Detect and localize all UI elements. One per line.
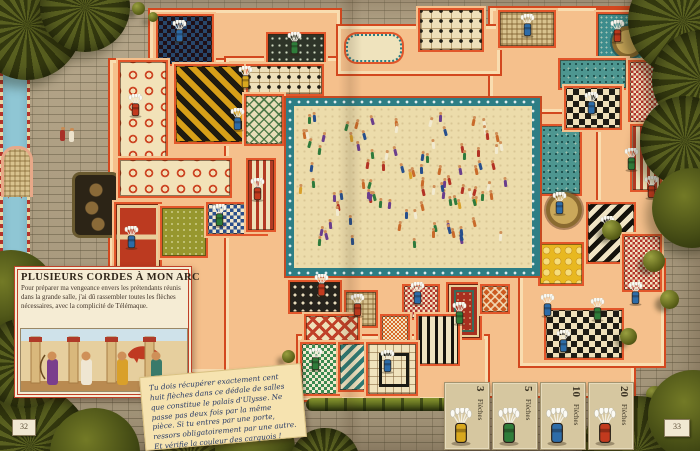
crowd-figure (394, 126, 398, 133)
crowd-figure (400, 166, 405, 174)
legend-tile-10-arrows: 10 Flèches (540, 382, 586, 450)
story-title: PLUSIEURS CORDES À MON ARC (21, 272, 185, 283)
legend-label: 5 Flèches (520, 386, 536, 420)
palace-room-latticeGreen[interactable] (246, 96, 282, 144)
palace-room-diamondGrid[interactable] (420, 10, 482, 50)
legend-label: 3 Flèches (472, 386, 488, 420)
crowd-figure (324, 232, 329, 240)
crowd-figure (491, 163, 495, 170)
palace-room-circles[interactable] (120, 62, 166, 160)
story-body: Pour préparer ma vengeance envers les pr… (21, 285, 185, 312)
crowd-figure (420, 154, 424, 161)
crowd-figure (499, 144, 503, 151)
palace-room-diamondGrid[interactable] (248, 66, 322, 94)
crowd-figure (367, 182, 372, 190)
crowd-figure (370, 117, 375, 125)
quiver-red[interactable] (350, 294, 365, 318)
quiver-blue[interactable] (584, 92, 599, 116)
crowd-figure (448, 199, 452, 206)
crowd-figure (477, 150, 480, 157)
crowd-figure (499, 234, 502, 241)
quiver-legend: 3 Flèches 5 Flèches 10 Flèches 20 Flèche… (444, 382, 634, 450)
crowd-figure (460, 187, 464, 194)
palace-room-yellowCircles[interactable] (540, 244, 582, 284)
crowd-figure (413, 241, 416, 248)
crowd-figure (405, 212, 408, 219)
crowd-figure (420, 203, 424, 210)
crowd-figure (321, 135, 325, 142)
courtyard-figure (69, 131, 74, 142)
crowd-figure (339, 193, 343, 200)
topiary-bush (132, 2, 145, 15)
quiver-blue[interactable] (230, 108, 245, 132)
topiary-bush (148, 12, 158, 22)
palace-room-olive[interactable] (162, 208, 206, 256)
quiver-blue[interactable] (380, 350, 395, 374)
legend-label: 10 Flèches (568, 386, 584, 425)
crowd-figure (441, 192, 445, 199)
quiver-blue[interactable] (556, 330, 571, 354)
crowd-figure (460, 229, 464, 236)
garden-arch-gate[interactable] (1, 146, 33, 197)
crowd-figure (378, 201, 381, 208)
crowd-figure (481, 194, 484, 201)
crowd-figure (495, 147, 498, 154)
crowd-figure (438, 168, 442, 175)
crowd-figure (432, 231, 435, 238)
crowd-figure (329, 222, 333, 229)
great-hall-floor (294, 106, 532, 268)
crowd-figure (313, 115, 317, 122)
crowd-figure (478, 163, 483, 171)
quiver-blue[interactable] (410, 282, 425, 306)
quiver-green-icon (497, 408, 521, 446)
quiver-blue[interactable] (628, 282, 643, 306)
page-number-left: 32 (12, 419, 36, 436)
crowd-figure (332, 195, 335, 202)
crowd-figure (388, 202, 392, 209)
crowd-figure (439, 115, 442, 122)
crowd-figure (361, 182, 365, 189)
crowd-figure (504, 180, 508, 187)
quiver-green[interactable] (287, 32, 302, 56)
crowd-figure (457, 201, 461, 208)
quiver-blue[interactable] (540, 294, 555, 318)
quiver-red[interactable] (250, 178, 265, 202)
topiary-bush (620, 328, 637, 345)
palace-room-zigzagRed[interactable] (306, 316, 358, 342)
crowd-figure (425, 156, 428, 163)
palace-room-orangeDither[interactable] (382, 316, 408, 342)
crowd-figure (381, 164, 384, 171)
quiver-blue[interactable] (172, 20, 187, 44)
crowd-figure (453, 197, 457, 204)
crowd-figure (362, 133, 367, 141)
crowd-figure (351, 238, 354, 245)
palace-room-capsule[interactable] (346, 34, 402, 62)
crowd-figure (344, 124, 349, 132)
legend-tile-20-arrows: 20 Flèches (588, 382, 634, 450)
crowd-figure (413, 212, 417, 219)
quiver-green[interactable] (212, 204, 227, 228)
crowd-figure (298, 187, 302, 194)
palace-room-circles[interactable] (120, 160, 230, 196)
quiver-red[interactable] (128, 94, 143, 118)
quiver-blue[interactable] (520, 14, 535, 38)
palace-room-tealZigzag[interactable] (340, 344, 366, 390)
topiary-bush (643, 250, 665, 272)
crowd-figure (397, 224, 401, 231)
crowd-figure (447, 178, 451, 185)
crowd-figure (317, 148, 321, 155)
puzzle-instructions-text: Tu dois récupérer exactement cent huit f… (149, 371, 298, 451)
topiary-bush (660, 290, 679, 309)
quiver-red[interactable] (610, 20, 625, 44)
quiver-blue[interactable] (552, 192, 567, 216)
crowd-figure (366, 162, 370, 169)
book-spread: PLUSIEURS CORDES À MON ARC Pour préparer… (0, 0, 700, 451)
crowd-figure (308, 141, 313, 149)
crowd-figure (458, 168, 462, 175)
legend-tile-3-arrows: 3 Flèches (444, 382, 490, 450)
crowd-figure (420, 167, 423, 174)
crowd-figure (306, 132, 310, 139)
crowd-figure (349, 135, 353, 142)
crowd-figure (475, 167, 479, 174)
crowd-figure (372, 194, 377, 202)
crowd-figure (489, 193, 493, 200)
crowd-figure (431, 188, 435, 195)
quiver-red[interactable] (314, 274, 329, 298)
crowd-figure (354, 122, 359, 130)
crowd-figure (349, 218, 352, 225)
quiver-red-icon (593, 408, 617, 446)
quiver-yellow[interactable] (238, 66, 253, 90)
puzzle-instructions-note: Tu dois récupérer exactement cent huit f… (139, 363, 307, 451)
legend-label: 20 Flèches (616, 386, 632, 425)
topiary-bush (282, 350, 295, 363)
legend-tile-5-arrows: 5 Flèches (492, 382, 538, 450)
quiver-green[interactable] (308, 348, 323, 372)
crowd-figure (485, 133, 489, 140)
page-number-right: 33 (664, 419, 690, 437)
quiver-yellow-icon (449, 408, 473, 446)
garden-hedge (306, 398, 460, 411)
great-hall[interactable] (284, 96, 542, 278)
crowd-figure (309, 165, 313, 172)
crowd-figure (393, 148, 398, 156)
quiver-green[interactable] (590, 298, 605, 322)
crowd-figure (472, 118, 476, 125)
palace-room-tealDots[interactable] (560, 60, 626, 88)
crowd-figure (318, 239, 322, 246)
crowd-figure (336, 209, 339, 216)
crowd-figure (312, 181, 316, 188)
quiver-blue-icon (545, 408, 569, 446)
storage-pit-amphorae (72, 172, 120, 238)
courtyard-figure (60, 130, 65, 141)
crowd-figure (432, 142, 436, 149)
crowd-figure (463, 153, 466, 160)
crowd-figure (357, 144, 361, 151)
crowd-figure (472, 220, 477, 228)
crowd-figure (421, 189, 425, 196)
palace-room-orangeRug[interactable] (482, 286, 508, 312)
crowd-figure (307, 117, 310, 124)
quiver-green[interactable] (452, 302, 467, 326)
crowd-figure (451, 230, 455, 237)
crowd-figure (443, 129, 448, 137)
quiver-blue[interactable] (124, 226, 139, 250)
topiary-bush (602, 220, 622, 240)
quiver-green[interactable] (624, 148, 639, 172)
crowd-figure (428, 120, 433, 128)
crowd-figure (385, 152, 389, 159)
crowd-figure (371, 152, 375, 159)
